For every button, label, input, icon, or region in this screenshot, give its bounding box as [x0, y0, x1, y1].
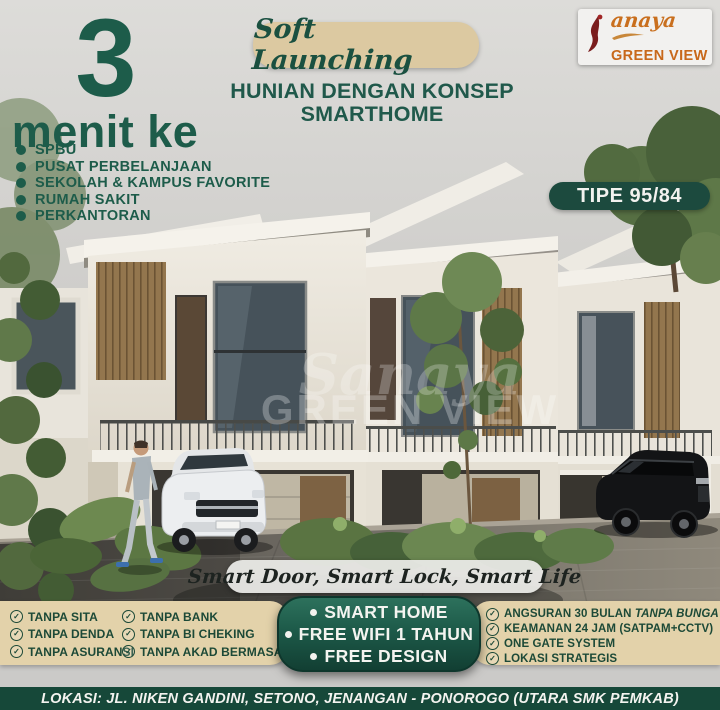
smart-tagline-banner: Smart Door, Smart Lock, Smart Life: [226, 560, 544, 593]
feature-item: FREE WIFI 1 TAHUN: [285, 624, 474, 645]
bullet-icon: [16, 178, 26, 188]
bullet-icon: [310, 653, 317, 660]
check-circle-icon: [122, 628, 135, 641]
check-circle-icon: [10, 645, 23, 658]
check-circle-icon: [486, 608, 499, 621]
benefit-item: TANPA SITA: [10, 608, 122, 626]
list-item: RUMAH SAKIT: [16, 192, 316, 209]
tagline-line2: SMARTHOME: [212, 103, 532, 126]
tagline: HUNIAN DENGAN KONSEP SMARTHOME: [212, 80, 532, 126]
check-circle-icon: [10, 628, 23, 641]
location-text: LOKASI: JL. NIKEN GANDINI, SETONO, JENAN…: [41, 691, 679, 707]
check-circle-icon: [122, 610, 135, 623]
brand-script: anaya: [610, 10, 677, 30]
benefit-item: KEAMANAN 24 JAM (SATPAM+CCTV): [486, 622, 720, 637]
soft-launching-banner: Soft Launching: [253, 22, 479, 68]
check-circle-icon: [10, 610, 23, 623]
list-item: PERKANTORAN: [16, 208, 316, 225]
feature-item: FREE DESIGN: [310, 646, 447, 667]
proximity-block: 3 menit ke: [10, 14, 200, 158]
tagline-line1: HUNIAN DENGAN KONSEP: [212, 80, 532, 103]
minutes-number: 3: [10, 14, 200, 104]
feature-item: SMART HOME: [310, 602, 448, 623]
bullet-icon: [16, 145, 26, 155]
bullet-icon: [310, 609, 317, 616]
check-circle-icon: [122, 645, 135, 658]
swoosh-icon: [611, 31, 645, 41]
bullet-icon: [16, 162, 26, 172]
location-bar: LOKASI: JL. NIKEN GANDINI, SETONO, JENAN…: [0, 687, 720, 710]
brand-logo: anaya GREEN VIEW: [578, 9, 712, 65]
list-item: SEKOLAH & KAMPUS FAVORITE: [16, 175, 316, 192]
nearby-list: SPBU PUSAT PERBELANJAAN SEKOLAH & KAMPUS…: [16, 142, 316, 225]
brand-text: anaya GREEN VIEW: [611, 10, 712, 64]
bullet-icon: [16, 195, 26, 205]
benefits-column-1: TANPA SITA TANPA DENDA TANPA ASURANSI: [10, 608, 122, 665]
flyer: 3 menit ke SPBU PUSAT PERBELANJAAN SEKOL…: [0, 0, 720, 710]
check-circle-icon: [486, 623, 499, 636]
bullet-icon: [16, 211, 26, 221]
benefit-item: ANGSURAN 30 BULAN TANPA BUNGA: [486, 607, 720, 622]
check-circle-icon: [486, 652, 499, 665]
list-item: SPBU: [16, 142, 316, 159]
benefit-item: TANPA ASURANSI: [10, 643, 122, 661]
list-item: PUSAT PERBELANJAAN: [16, 159, 316, 176]
center-features-box: SMART HOME FREE WIFI 1 TAHUN FREE DESIGN: [277, 596, 481, 672]
check-circle-icon: [486, 637, 499, 650]
benefit-item: ONE GATE SYSTEM: [486, 637, 720, 652]
benefits-panel-left: TANPA SITA TANPA DENDA TANPA ASURANSI TA…: [0, 601, 288, 665]
bullet-icon: [285, 631, 292, 638]
benefit-item: LOKASI STRATEGIS: [486, 651, 720, 666]
benefit-item: TANPA DENDA: [10, 626, 122, 644]
benefits-panel-right: ANGSURAN 30 BULAN TANPA BUNGA KEAMANAN 2…: [472, 601, 720, 665]
brand-caps: GREEN VIEW: [611, 49, 712, 64]
type-badge: TIPE 95/84: [549, 182, 710, 210]
sanaya-flame-icon: [585, 14, 609, 60]
